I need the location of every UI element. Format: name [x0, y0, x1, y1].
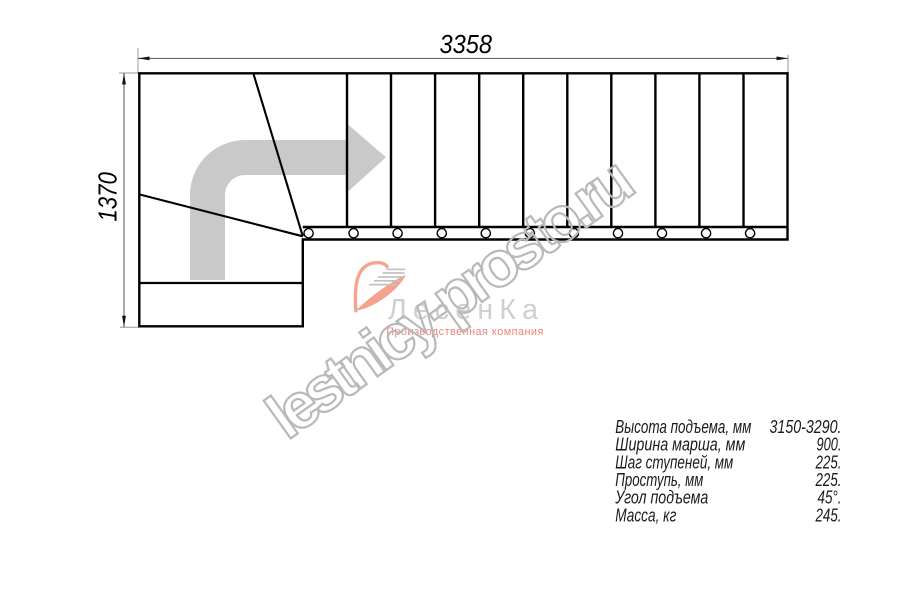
- svg-text:3358: 3358: [440, 29, 493, 59]
- svg-text:Масса, кг: Масса, кг: [615, 504, 676, 525]
- svg-text:1370: 1370: [93, 172, 123, 222]
- svg-text:245.: 245.: [815, 504, 842, 525]
